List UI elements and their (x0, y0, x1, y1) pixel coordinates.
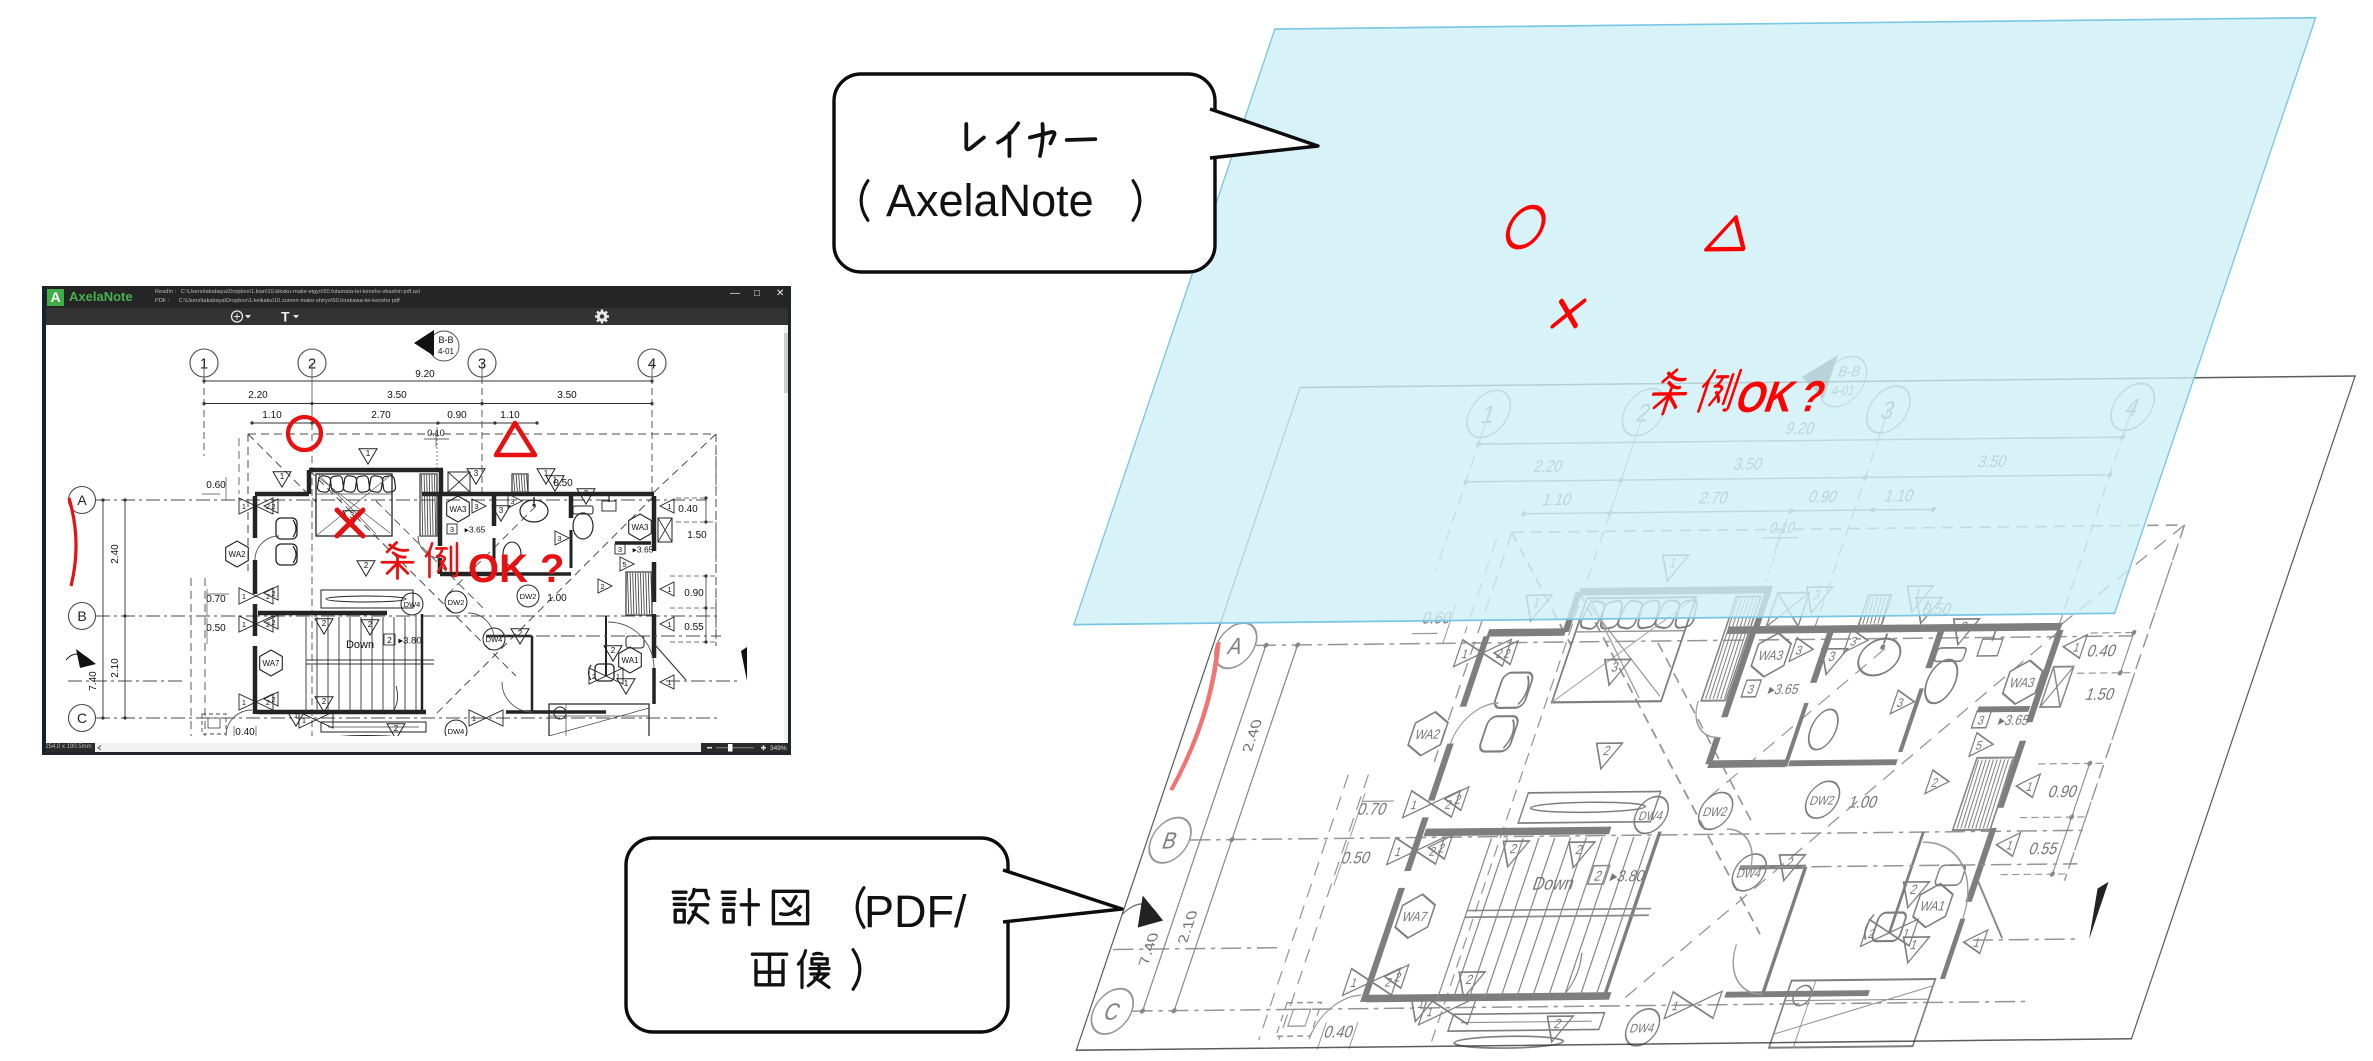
svg-text:?: ? (540, 547, 564, 591)
svg-text:OK: OK (468, 547, 528, 591)
svg-text:PDF/: PDF/ (864, 886, 967, 937)
svg-text:T: T (281, 309, 290, 325)
svg-text:AxelaNote: AxelaNote (886, 175, 1094, 226)
